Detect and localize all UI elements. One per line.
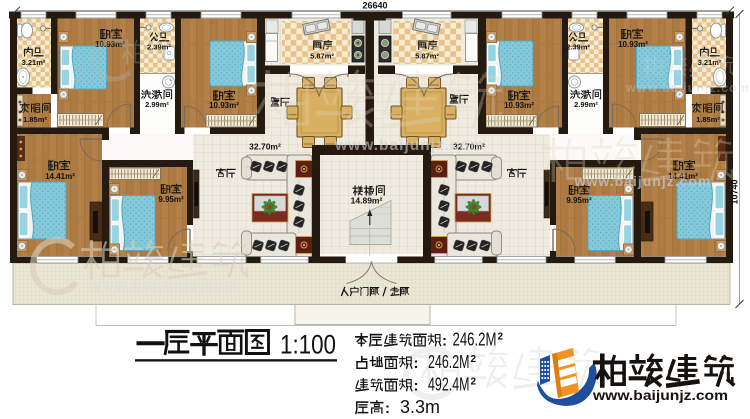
svg-text::: :	[385, 400, 390, 417]
svg-text:246.2M: 246.2M	[428, 352, 470, 372]
svg-text:www.baijunjz.com: www.baijunjz.com	[574, 173, 712, 189]
svg-text:10.93m²: 10.93m²	[209, 101, 239, 110]
svg-text:14.41m²: 14.41m²	[45, 172, 75, 181]
svg-text:3.21m²: 3.21m²	[22, 58, 46, 67]
svg-text:26640: 26640	[362, 1, 387, 11]
svg-text:www.baijunjz.com: www.baijunjz.com	[88, 278, 238, 294]
svg-text:492.4M: 492.4M	[428, 375, 470, 395]
svg-text:1.85m²: 1.85m²	[696, 115, 720, 124]
svg-text:246.2M: 246.2M	[453, 330, 497, 350]
svg-text:2: 2	[471, 354, 477, 365]
svg-text:2.39m²: 2.39m²	[566, 43, 590, 52]
svg-text::: :	[414, 378, 419, 395]
svg-text:10.93m²: 10.93m²	[504, 101, 534, 110]
svg-text:2.99m²: 2.99m²	[574, 100, 598, 109]
svg-text:1.85m²: 1.85m²	[23, 115, 47, 124]
svg-text:10740: 10740	[730, 179, 740, 204]
svg-text::: :	[414, 355, 419, 372]
svg-text:www.baijunjz.com: www.baijunjz.com	[592, 388, 728, 403]
svg-text:2: 2	[471, 377, 477, 388]
svg-text:14.89m²: 14.89m²	[351, 196, 383, 206]
svg-text:3.3m: 3.3m	[400, 397, 440, 417]
svg-text:5.87m²: 5.87m²	[310, 52, 334, 61]
svg-text::: :	[442, 333, 447, 350]
svg-text:2.99m²: 2.99m²	[145, 100, 169, 109]
svg-text:1:100: 1:100	[280, 330, 336, 360]
svg-text:www.baijunjz.com: www.baijunjz.com	[334, 137, 485, 154]
svg-text:www.baijunjz.com: www.baijunjz.com	[625, 81, 750, 95]
svg-text:32.70m²: 32.70m²	[249, 142, 281, 152]
svg-text:9.95m²: 9.95m²	[566, 196, 592, 205]
svg-text:10.93m²: 10.93m²	[618, 40, 648, 49]
svg-text:2: 2	[498, 332, 504, 343]
svg-text:5.87m²: 5.87m²	[415, 52, 439, 61]
svg-text:9.95m²: 9.95m²	[158, 195, 184, 204]
